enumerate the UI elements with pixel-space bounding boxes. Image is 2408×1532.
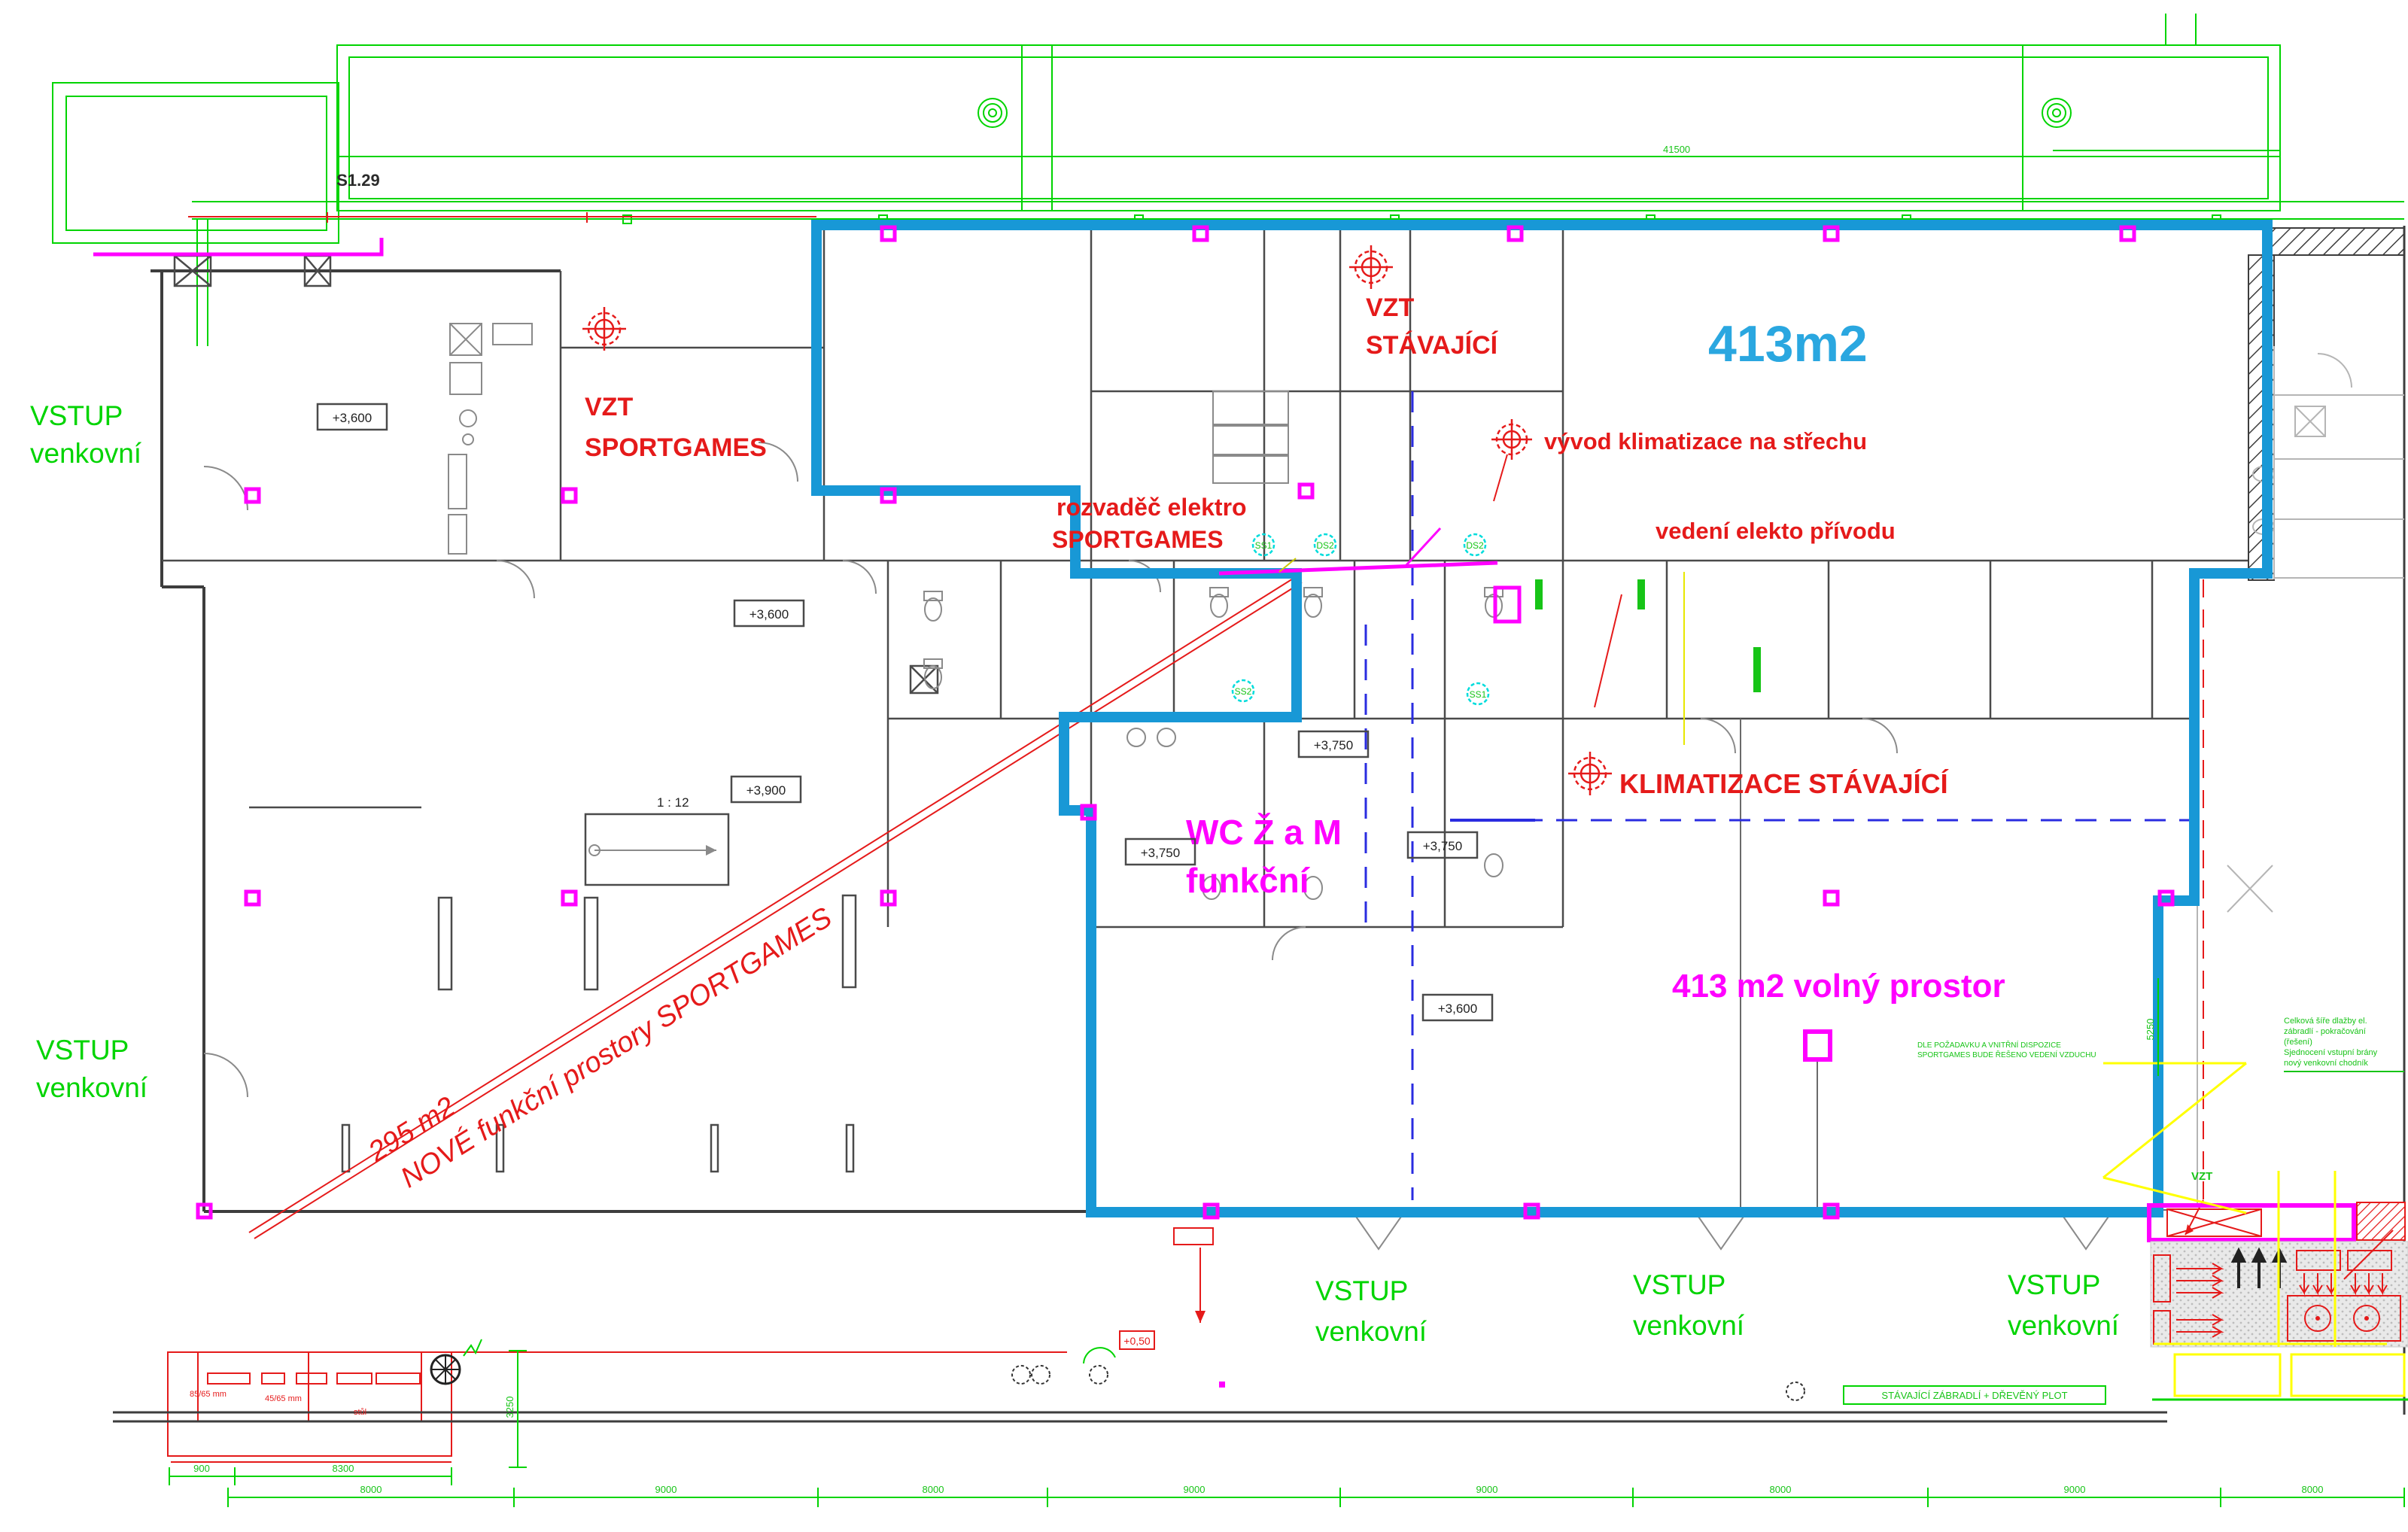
dim-top: 41500: [1663, 144, 1690, 155]
vedeni-elektro-label: vedení elekto přívodu: [1655, 518, 1896, 544]
entrance-label-1a: VSTUP: [30, 400, 123, 431]
dim-label: 9000: [655, 1484, 677, 1495]
red-x-box: [2167, 1202, 2405, 1240]
vyvod-klimatizace-label: vývod klimatizace na střechu: [1544, 428, 1867, 454]
vzt-sportgames-label-1: VZT: [585, 393, 633, 421]
level-marker-label: +0,50: [1123, 1335, 1151, 1347]
floor-plan-drawing: S1.29 VZT SPORTGAMES VZT STÁVAJÍCÍ 413m2…: [0, 0, 2408, 1532]
dim-label: 8000: [360, 1484, 382, 1495]
entrance-label-2b: venkovní: [36, 1072, 148, 1103]
entrance-label-2a: VSTUP: [36, 1035, 129, 1065]
svg-text:(řešení): (řešení): [2284, 1038, 2312, 1047]
dim-label-vertical: 3250: [504, 1397, 515, 1418]
svg-text:SPORTGAMES BUDE ŘEŠENO VEDENÍ: SPORTGAMES BUDE ŘEŠENO VEDENÍ VZDUCHU: [1917, 1050, 2096, 1059]
dim-label: 9000: [2064, 1484, 2086, 1495]
svg-text:nový venkovní chodník: nový venkovní chodník: [2284, 1059, 2368, 1068]
svg-text:DLE POŽADAVKU A VNITŘNÍ DISPOZ: DLE POŽADAVKU A VNITŘNÍ DISPOZICE: [1917, 1040, 2061, 1050]
entrance-label-1b: venkovní: [30, 438, 142, 469]
electro-symbol-label: DS2: [1316, 540, 1334, 551]
electro-symbols: [1233, 534, 1761, 745]
dim-label: 9000: [1476, 1484, 1498, 1495]
free-space-label: 413 m2 volný prostor: [1672, 968, 2005, 1005]
note-block-right: Celková šíře dlažby el. zábradlí - pokra…: [2284, 1017, 2404, 1071]
svg-text:+3,600: +3,600: [749, 607, 789, 622]
furniture-dim-1: 85/65 mm: [190, 1390, 227, 1399]
svg-text:STÁVAJÍCÍ ZÁBRADLÍ + DŘEVĚNÝ P: STÁVAJÍCÍ ZÁBRADLÍ + DŘEVĚNÝ PLOT: [1881, 1390, 2067, 1401]
fence-note: STÁVAJÍCÍ ZÁBRADLÍ + DŘEVĚNÝ PLOT: [1844, 1386, 2105, 1404]
diagonal-space-label: NOVÉ funkční prostory SPORTGAMES: [395, 901, 838, 1194]
dim-label: 8300: [333, 1463, 354, 1474]
electro-symbol-label: SS1: [1470, 689, 1487, 700]
svg-text:Celková šíře dlažby el.: Celková šíře dlažby el.: [2284, 1017, 2367, 1026]
note-block-left: DLE POŽADAVKU A VNITŘNÍ DISPOZICE SPORTG…: [1917, 1040, 2096, 1059]
canopy-outline-green: [53, 14, 2404, 346]
dim-label: 8000: [923, 1484, 944, 1495]
svg-text:+3,900: +3,900: [746, 783, 786, 798]
entrance-label-5b: venkovní: [2008, 1310, 2120, 1341]
electro-symbol-label: DS2: [1466, 540, 1484, 551]
spiral-symbol-icon: [978, 99, 1007, 127]
vzt-stavajici-label-2: STÁVAJÍCÍ: [1366, 331, 1499, 360]
floor-plan-canvas: S1.29 VZT SPORTGAMES VZT STÁVAJÍCÍ 413m2…: [0, 0, 2408, 1532]
wc-label-2: funkční: [1186, 861, 1311, 900]
svg-text:+3,750: +3,750: [1314, 738, 1353, 752]
dim-label: 8000: [1770, 1484, 1792, 1495]
vzt-stavajici-label-1: VZT: [1366, 293, 1414, 322]
dim-label: 8000: [2302, 1484, 2324, 1495]
yellow-guides: [2103, 1063, 2246, 1213]
svg-text:+3,600: +3,600: [333, 411, 372, 425]
rozvadec-label-1: rozvaděč elektro: [1057, 494, 1247, 521]
rozvadec-label-2: SPORTGAMES: [1052, 526, 1224, 553]
vzt-sportgames-label-2: SPORTGAMES: [585, 433, 767, 462]
svg-text:Sjednocení vstupní brány: Sjednocení vstupní brány: [2284, 1048, 2378, 1057]
dim-label: 900: [193, 1463, 210, 1474]
spiral-symbol-icon: [2042, 99, 2071, 127]
room-code-label: S1.29: [336, 171, 380, 190]
furniture-table-label: stůl: [354, 1408, 366, 1417]
vzt-small-label: VZT: [2191, 1170, 2212, 1183]
svg-text:+3,750: +3,750: [1141, 846, 1180, 860]
klimatizace-label: KLIMATIZACE STÁVAJÍCÍ: [1619, 768, 1949, 799]
svg-text:+3,750: +3,750: [1423, 839, 1462, 853]
wc-label-1: WC Ž a M: [1186, 813, 1342, 852]
furniture-dim-2: 45/65 mm: [265, 1394, 302, 1403]
electro-symbol-label: SS2: [1235, 686, 1252, 697]
electro-symbol-label: SS1: [1255, 540, 1272, 551]
entrance-label-4a: VSTUP: [1633, 1269, 1725, 1300]
area-413-label: 413m2: [1708, 315, 1868, 372]
ramp: [585, 814, 728, 885]
entrance-label-5a: VSTUP: [2008, 1269, 2100, 1300]
dim-label: 9000: [1184, 1484, 1206, 1495]
entrance-label-4b: venkovní: [1633, 1310, 1745, 1341]
svg-text:zábradlí - pokračování: zábradlí - pokračování: [2284, 1027, 2366, 1036]
ramp-slope-label: 1 : 12: [657, 795, 689, 810]
dim-label-vertical: 5250: [2145, 1019, 2156, 1041]
magenta-markers: [93, 227, 2354, 1240]
entrance-label-3a: VSTUP: [1315, 1275, 1408, 1306]
svg-text:+3,600: +3,600: [1438, 1002, 1477, 1016]
entrance-label-3b: venkovní: [1315, 1316, 1427, 1347]
wc-fixtures: [924, 588, 1503, 899]
